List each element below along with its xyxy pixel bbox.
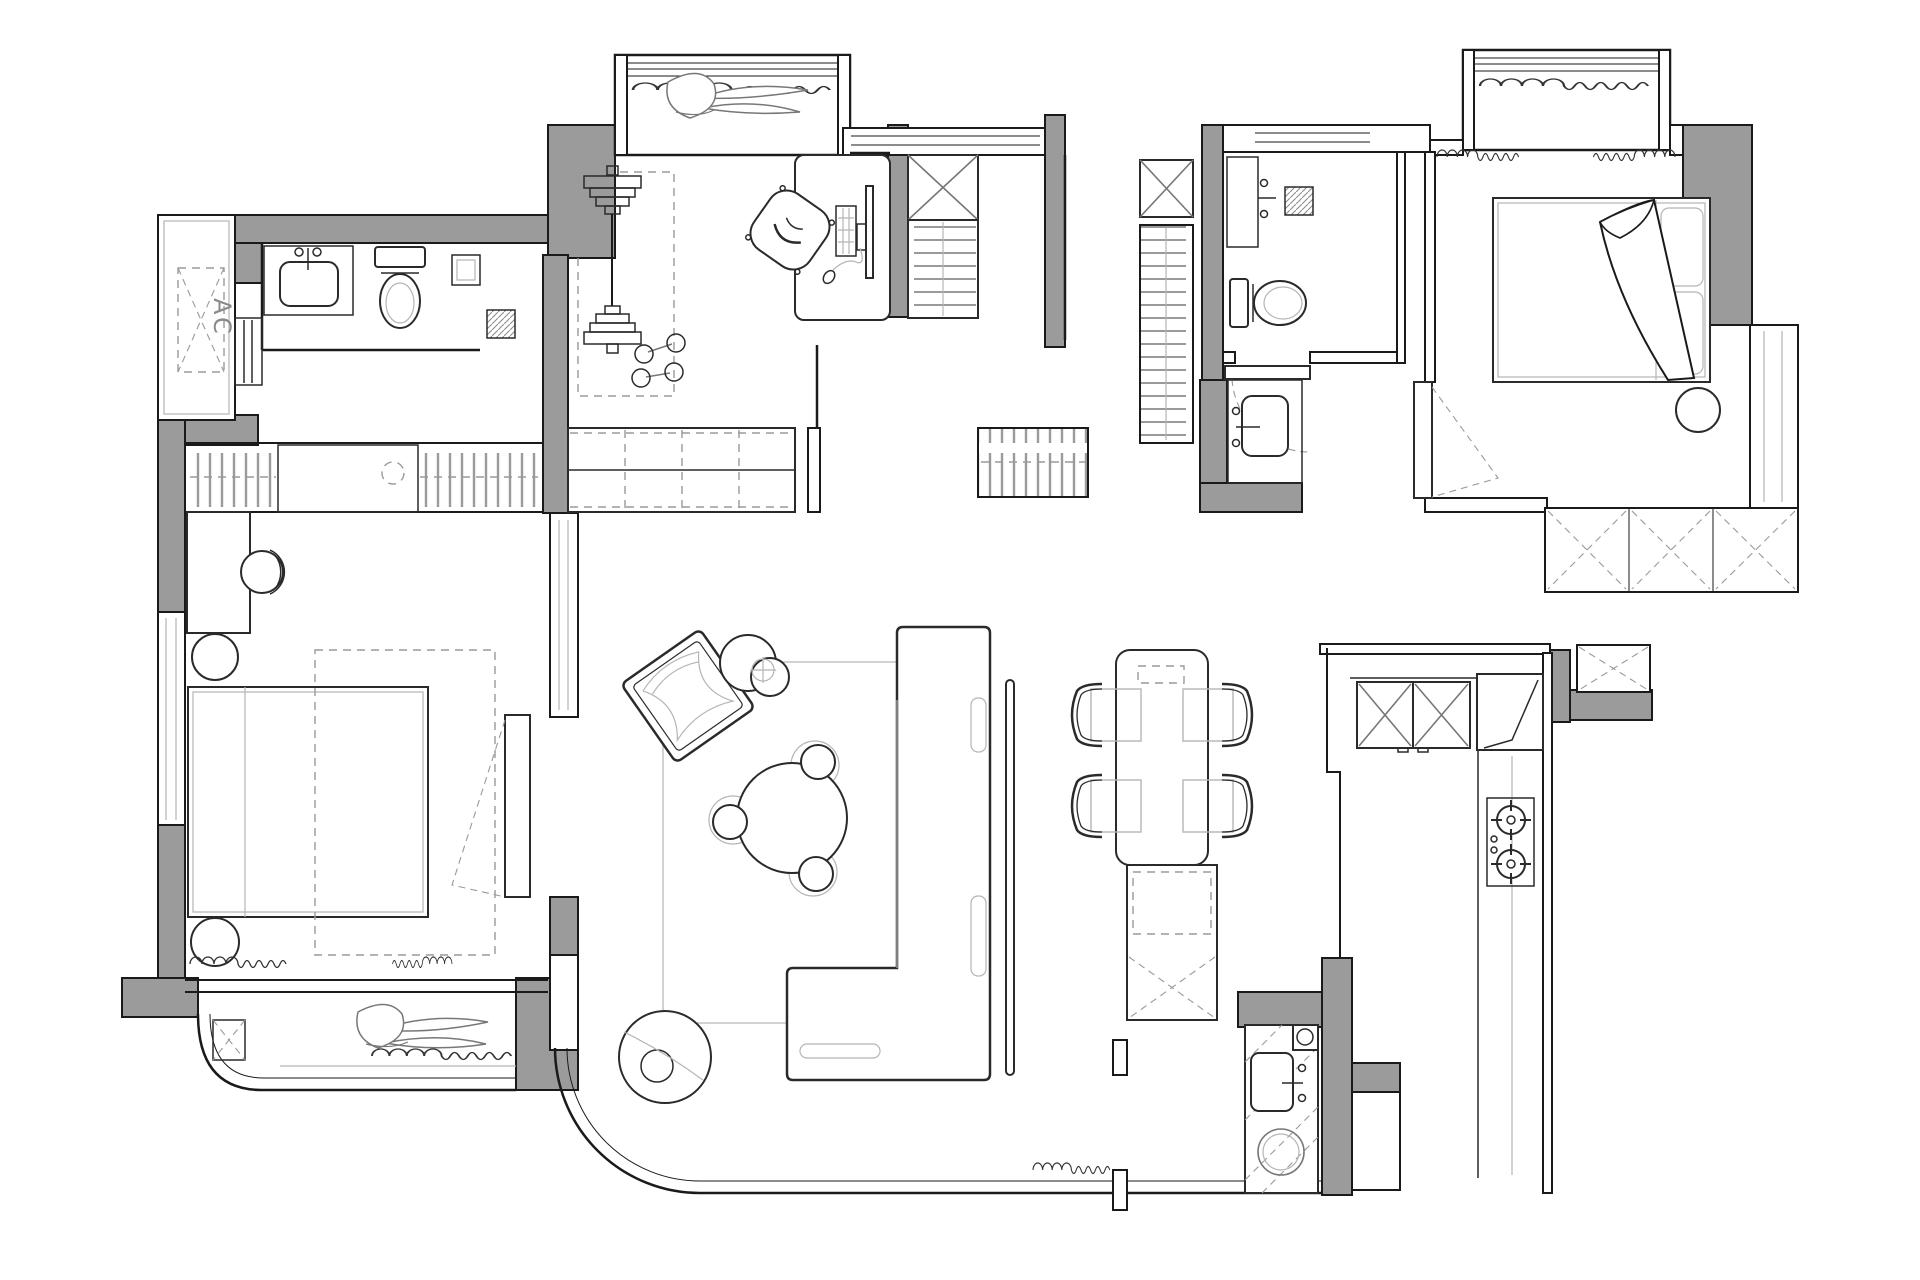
shower-drain-icon — [1285, 187, 1313, 215]
dining-table-icon — [1116, 650, 1208, 865]
corner-cabinet-icon — [1477, 674, 1543, 750]
wall-segment — [548, 125, 615, 258]
wall-segment — [1310, 352, 1397, 363]
wall-segment — [1570, 690, 1652, 720]
stool-icon — [713, 805, 747, 839]
water-heater-icon — [1293, 1025, 1318, 1050]
stool-icon — [801, 745, 835, 779]
cushion — [971, 698, 986, 752]
vanity-nook — [1228, 380, 1302, 483]
bed-icon — [1493, 198, 1710, 382]
bathroom-sink-icon — [264, 246, 353, 315]
sink-icon — [1251, 1053, 1293, 1111]
wall-segment — [1425, 498, 1547, 512]
bathroom-1 — [235, 243, 515, 385]
sideboard-icon — [1127, 865, 1217, 1020]
bed-icon — [188, 687, 428, 917]
left-bedroom — [185, 443, 543, 968]
side-cabinet-icon — [235, 318, 262, 385]
wall-segment — [1200, 483, 1302, 512]
wall-segment — [1223, 352, 1235, 363]
kitchen-cabinet-icon — [1357, 682, 1470, 752]
curtain-icon — [1033, 1163, 1110, 1174]
living-room — [619, 627, 990, 1103]
curtain-icon — [392, 957, 452, 968]
nightstand-icon — [192, 634, 238, 680]
toilet-icon — [1230, 279, 1306, 327]
master-door-icon — [1414, 382, 1498, 498]
ac-closet: AC — [158, 215, 236, 420]
storage-x-icon — [1577, 645, 1650, 692]
door-icon — [452, 715, 530, 897]
wall-segment — [1352, 1092, 1400, 1190]
master-wardrobe-icon — [1545, 508, 1798, 592]
monitor-icon — [866, 186, 873, 278]
wall-segment — [235, 215, 548, 243]
wall-segment — [1320, 644, 1550, 654]
wall-segment — [1200, 380, 1227, 485]
wall-segment — [1397, 152, 1405, 363]
wall-segment — [1322, 958, 1352, 1195]
wall-segment — [1045, 115, 1065, 347]
shelf-unit-icon — [1140, 225, 1193, 443]
dresser-icon — [278, 445, 418, 512]
wall-segment — [550, 513, 578, 717]
floor-plan-page: AC — [0, 0, 1920, 1280]
wall-segment — [550, 897, 578, 955]
floor-plan-drawing: AC — [0, 0, 1920, 1280]
cushion — [971, 896, 986, 976]
stool-icon — [1676, 388, 1720, 432]
window-icon — [843, 128, 1045, 155]
nightstand-icon — [191, 918, 239, 966]
wall-segment — [122, 978, 198, 1017]
wall-segment — [1352, 1063, 1400, 1092]
cushion — [800, 1044, 880, 1058]
ac-label: AC — [208, 298, 236, 337]
laundry — [1033, 1025, 1318, 1210]
toilet-icon — [375, 247, 425, 328]
partition-wall — [1006, 680, 1014, 1075]
dining-area — [1006, 650, 1252, 1075]
wardrobe-x-icon — [1140, 160, 1193, 217]
dressing-chair-icon — [241, 550, 284, 594]
study-gym-room — [568, 155, 1088, 512]
curtain-icon — [1593, 150, 1675, 161]
wall-segment — [543, 255, 568, 513]
wall-segment — [158, 415, 185, 612]
shower-drain-icon — [487, 310, 515, 338]
drawer-unit-icon — [908, 220, 978, 318]
floor-lamp-icon — [619, 1011, 711, 1103]
window-icon — [1223, 125, 1430, 152]
bay-window — [1463, 50, 1670, 150]
dumbbells-icon — [632, 334, 685, 387]
door-frame — [808, 428, 820, 512]
wardrobe-rail-icon — [185, 443, 543, 512]
low-cabinet-icon — [568, 428, 795, 512]
stove-icon — [1487, 798, 1534, 886]
sink-icon — [1233, 396, 1289, 456]
door-frame — [1113, 1040, 1127, 1075]
window-icon — [1750, 325, 1798, 508]
burner-icon — [1491, 800, 1531, 840]
hall-storage — [1140, 160, 1193, 443]
wall-segment — [550, 955, 578, 1050]
plant-icon — [357, 1004, 488, 1048]
closet-rail-icon — [978, 428, 1088, 497]
wall-segment — [158, 825, 185, 985]
wall-segment — [235, 243, 262, 283]
door-frame — [1113, 1170, 1127, 1210]
coffee-table-icon — [709, 741, 847, 896]
curtain-icon — [372, 1049, 511, 1060]
balcony — [213, 1004, 511, 1060]
wall-segment — [1543, 653, 1552, 1193]
window-icon — [158, 612, 185, 825]
wall-segment — [1238, 992, 1322, 1027]
wardrobe-x-icon — [908, 155, 978, 220]
vanity-cabinet-icon — [1227, 157, 1276, 247]
stool-icon — [799, 857, 833, 891]
wall-segment — [1425, 152, 1435, 382]
